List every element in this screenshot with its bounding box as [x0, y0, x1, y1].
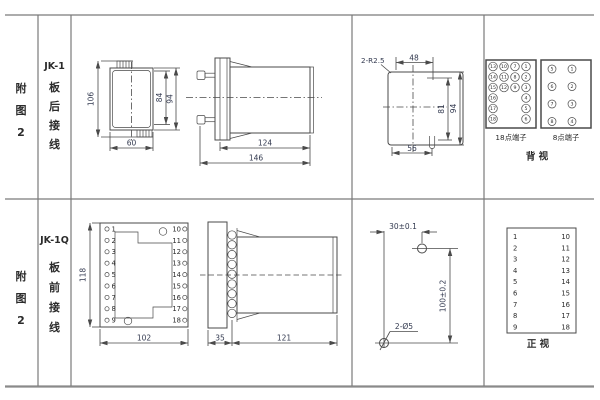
terminal-number: 5 — [525, 106, 528, 112]
wiring-label-char: 板 — [49, 80, 61, 94]
dim-106: 106 — [87, 92, 96, 107]
table-number: 13 — [561, 267, 570, 275]
drawing-canvas: 附 图 2 JK-1 板 后 接 线 106 84 — [0, 0, 600, 400]
hole-callout: 2-Ø5 — [395, 322, 413, 331]
table-number: 4 — [513, 267, 517, 275]
dim-121: 121 — [277, 334, 292, 343]
terminal-number: 5 — [112, 271, 116, 279]
dim-84: 84 — [155, 93, 164, 103]
terminal-number: 17 — [490, 106, 496, 112]
terminal-number: 18 — [490, 117, 496, 123]
terminal-number: 10 — [172, 225, 181, 233]
terminal-number: 4 — [525, 96, 528, 102]
dim-102: 102 — [137, 334, 152, 343]
terminal-number: 16 — [172, 294, 181, 302]
wiring-label-char: 接 — [49, 118, 60, 132]
terminal-number: 2 — [112, 237, 116, 245]
terminal-number: 12 — [501, 85, 507, 91]
table-number: 12 — [561, 256, 570, 264]
terminal-number: 18 — [172, 317, 181, 325]
terminal-number: 11 — [501, 75, 507, 81]
table-number: 15 — [561, 290, 570, 298]
jk1q-drill-plan: 30±0.1 100±0.2 2-Ø5 — [370, 222, 458, 350]
terminal-number: 5 — [551, 67, 554, 73]
table-number: 9 — [513, 323, 517, 331]
terminal-number: 4 — [112, 260, 116, 268]
technical-drawing-sheet: 附 图 2 JK-1 板 后 接 线 106 84 — [0, 0, 600, 400]
terminal-number: 6 — [525, 117, 528, 123]
terminal-number: 1 — [571, 67, 574, 73]
terminal-number: 15 — [172, 282, 181, 290]
terminal-number: 8 — [112, 305, 116, 313]
dim-94b: 94 — [449, 104, 458, 114]
wiring-label-char: 线 — [49, 137, 60, 151]
row1-sidebar: 附 图 2 JK-1 板 后 接 线 — [16, 61, 65, 151]
terminal-number: 7 — [112, 294, 116, 302]
fig-label-char: 附 — [16, 81, 27, 95]
table-number: 14 — [561, 278, 570, 286]
terminal-number: 6 — [112, 282, 116, 290]
terminal-number: 16 — [490, 96, 496, 102]
terminal-number: 7 — [514, 64, 517, 70]
table-number: 6 — [513, 290, 517, 298]
terminal-number: 3 — [112, 248, 116, 256]
terminal-number: 4 — [571, 119, 574, 125]
table-number: 10 — [561, 233, 570, 241]
terminal-number: 10 — [501, 64, 507, 70]
dim-94: 94 — [166, 94, 175, 104]
jk1q-front-view: 1 2 3 4 5 6 7 8 9 10 11 12 13 14 15 16 1… — [79, 223, 189, 346]
jk1-panel-cutout: 2-R2.5 48 81 94 56 — [361, 54, 464, 157]
model-label-jk1q: JK-1Q — [39, 235, 69, 246]
fig-label-char: 2 — [17, 126, 25, 139]
jk1-front-view: 106 84 94 60 — [87, 61, 181, 151]
dim-35: 35 — [215, 334, 225, 343]
rear-view-label: 背 视 — [526, 151, 549, 163]
wiring-label-char: 前 — [49, 280, 60, 294]
table-number: 8 — [513, 312, 517, 320]
fig-label-char: 图 — [16, 292, 27, 305]
terminal-number: 9 — [112, 317, 116, 325]
terminal-number: 2 — [571, 84, 574, 90]
table-number: 1 — [513, 233, 517, 241]
dim-56: 56 — [407, 144, 417, 153]
block8-label: 8点端子 — [553, 133, 580, 142]
terminal-number: 2 — [525, 75, 528, 81]
terminal-number: 17 — [172, 305, 181, 313]
wiring-label-char: 板 — [49, 260, 61, 274]
wiring-label-char: 后 — [49, 99, 60, 113]
block18-label: 18点端子 — [495, 133, 526, 142]
table-number: 18 — [561, 323, 570, 331]
fig-label-char: 2 — [17, 314, 25, 327]
terminal-number: 3 — [571, 102, 574, 108]
radius-callout: 2-R2.5 — [361, 56, 385, 65]
fig-label-char: 图 — [16, 104, 27, 117]
table-number: 16 — [561, 301, 570, 309]
terminal-number: 14 — [490, 75, 496, 81]
row2-sidebar: 附 图 2 JK-1Q 板 前 接 线 — [16, 235, 69, 334]
jk1q-side-view: 35 121 — [200, 222, 343, 346]
dim-146: 146 — [249, 154, 264, 163]
terminal-number: 1 — [525, 64, 528, 70]
wiring-label-char: 线 — [49, 320, 60, 334]
dim-48: 48 — [409, 54, 419, 63]
model-label-jk1: JK-1 — [43, 61, 65, 72]
terminal-block-18: 13 10 7 1 14 11 8 2 15 12 9 3 16 4 17 5 … — [486, 60, 536, 142]
table-number: 17 — [561, 312, 570, 320]
jk1q-terminal-table: 1 2 3 4 5 6 7 8 9 10 11 12 13 14 15 16 1… — [507, 228, 576, 350]
dim-100: 100±0.2 — [439, 280, 448, 313]
terminal-number: 3 — [525, 85, 528, 91]
terminal-number: 13 — [172, 260, 181, 268]
terminal-block-8: 5 1 6 2 7 3 8 4 8点端子 — [541, 60, 591, 142]
dim-30: 30±0.1 — [389, 222, 417, 231]
terminal-number: 11 — [172, 237, 181, 245]
dim-60: 60 — [127, 139, 137, 148]
terminal-number: 12 — [172, 248, 181, 256]
terminal-number: 8 — [514, 75, 517, 81]
fig-label-char: 附 — [16, 269, 27, 283]
terminal-number: 14 — [172, 271, 181, 279]
terminal-number: 15 — [490, 85, 496, 91]
table-number: 3 — [513, 256, 517, 264]
terminal-number: 6 — [551, 84, 554, 90]
jk1-side-view: 124 146 — [186, 58, 322, 166]
terminal-number: 13 — [490, 64, 496, 70]
table-number: 7 — [513, 301, 517, 309]
dim-124: 124 — [258, 139, 273, 148]
terminal-number: 7 — [551, 102, 554, 108]
dim-118: 118 — [79, 268, 88, 283]
front-view-label: 正 视 — [527, 338, 550, 350]
table-number: 5 — [513, 278, 517, 286]
table-number: 2 — [513, 244, 517, 252]
wiring-label-char: 接 — [49, 300, 60, 314]
table-number: 11 — [561, 244, 570, 252]
terminal-number: 8 — [551, 119, 554, 125]
terminal-number: 9 — [514, 85, 517, 91]
terminal-number: 1 — [112, 225, 116, 233]
dim-81: 81 — [437, 104, 446, 114]
